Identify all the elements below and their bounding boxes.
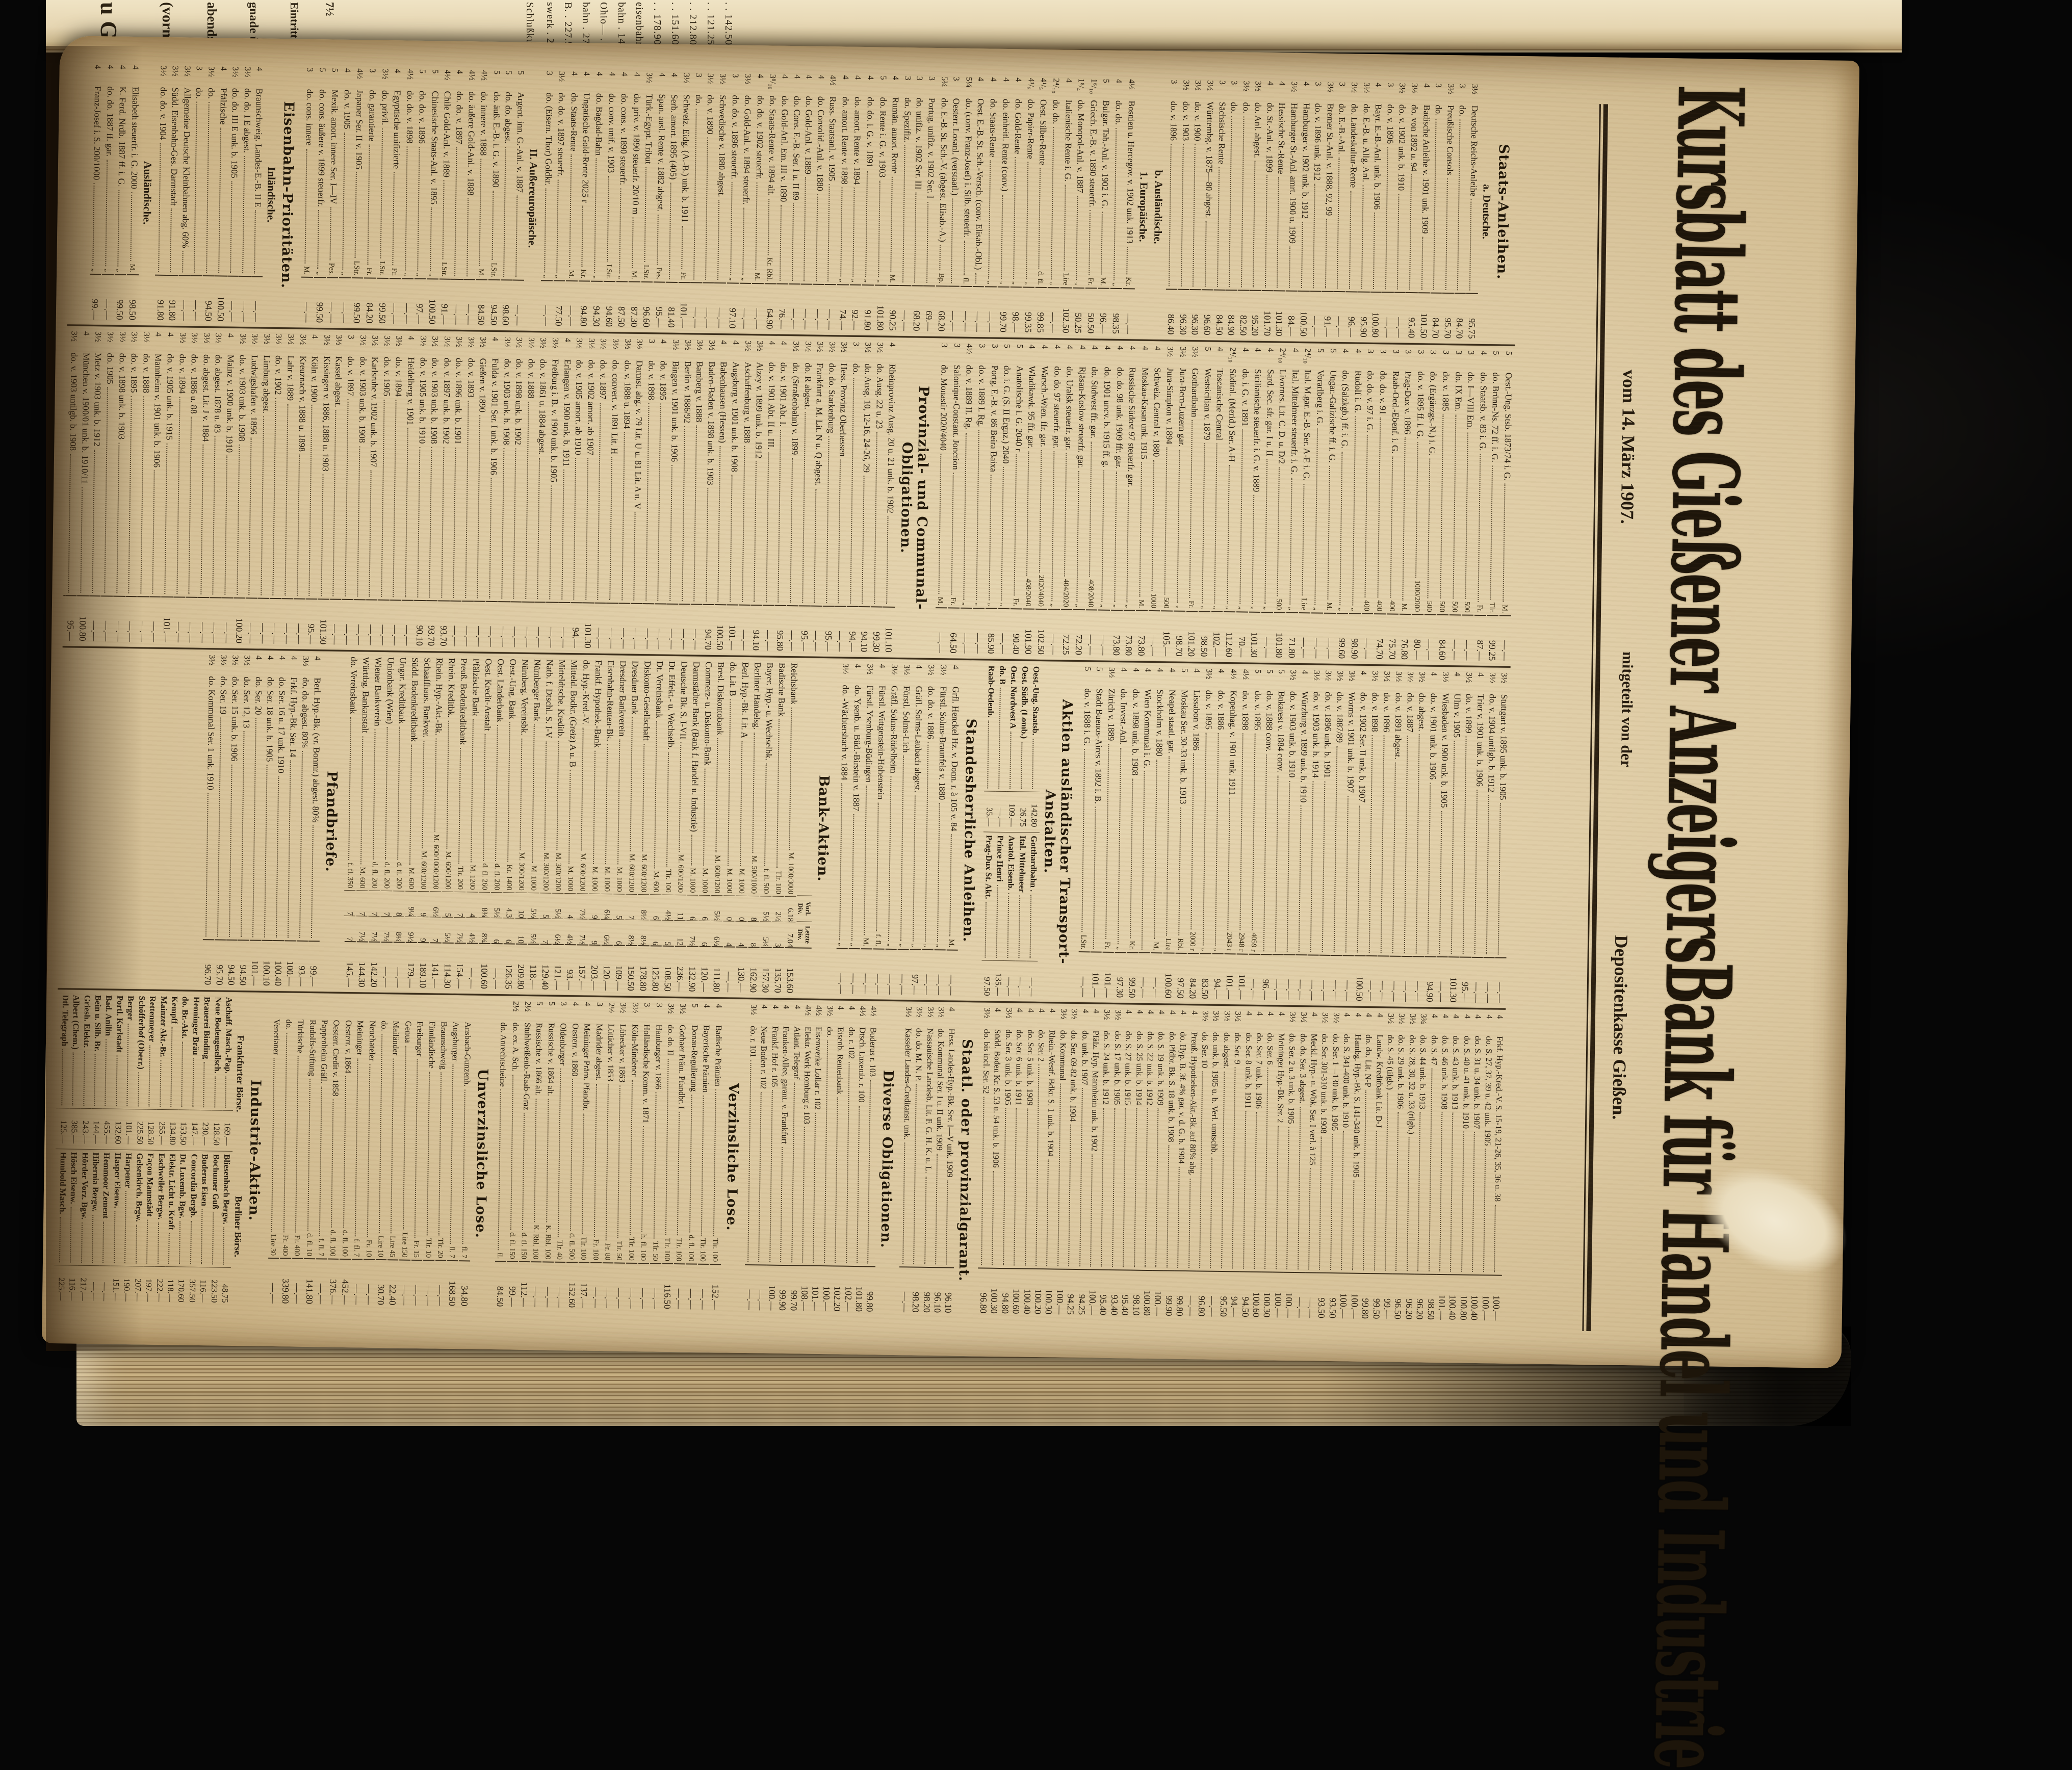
quote-name-text: do. v. 1888 bbox=[525, 359, 537, 399]
quote-price: —.— bbox=[326, 277, 338, 323]
dot-leader bbox=[1139, 462, 1142, 597]
quote-price: 80.— bbox=[1411, 614, 1423, 660]
quote-name-text: do. Ser. 9 bbox=[1232, 1032, 1243, 1064]
pair-right-name: Bochumer Guß bbox=[210, 1154, 222, 1210]
quote-denom: d. fl. 150 bbox=[506, 1232, 517, 1259]
quote-rate: 4 bbox=[846, 1006, 858, 1027]
quote-name-text: do. S. 47 bbox=[1429, 1035, 1440, 1065]
quote-denom: d. fl. bbox=[1034, 271, 1046, 285]
quote-rate: 3½ bbox=[742, 74, 754, 95]
quote-price: 94.70 bbox=[702, 604, 714, 650]
quote-name: do. conv. unif. v. 1903 bbox=[604, 93, 617, 265]
quote-rate: 3½ bbox=[643, 72, 655, 94]
dot-leader bbox=[891, 176, 893, 272]
quote-price: 100.40 bbox=[273, 940, 284, 986]
bank-letzte-div: 8¼ bbox=[393, 916, 404, 942]
quote-rate: 4 bbox=[568, 71, 580, 93]
quote-price: 94.— bbox=[846, 606, 859, 652]
quote-rate: 3½ bbox=[1164, 346, 1176, 368]
quote-name-text: do. Ser. 18 unk. b. 1905 bbox=[264, 677, 276, 762]
quote-rate: 3½ bbox=[618, 1002, 629, 1024]
quote-price: —.— bbox=[872, 948, 884, 994]
quote-rate: 3½ bbox=[1203, 668, 1215, 690]
dot-leader bbox=[1014, 1108, 1017, 1266]
quote-name-text: do. v. 1905 bbox=[341, 90, 353, 129]
quote-rate: 4 bbox=[1264, 348, 1276, 369]
quote-rate: 4 bbox=[1091, 1009, 1102, 1030]
quote-name-text: do. i. G. (S. II Ergnz.) 2040 bbox=[1000, 366, 1013, 464]
quote-rate bbox=[346, 999, 346, 1020]
quote-rate: 3½ bbox=[157, 66, 169, 87]
facing-quote-fragment: . . 212.80 bbox=[687, 2, 698, 45]
quote-denom: 404/2020 bbox=[1060, 579, 1072, 607]
dot-leader bbox=[182, 251, 184, 273]
quote-price: 96.30 bbox=[1189, 289, 1201, 335]
quote-price: —.— bbox=[315, 1258, 327, 1304]
quote-price: 71.80 bbox=[1286, 612, 1298, 658]
quote-name-text: do. v. 1897 bbox=[345, 356, 357, 396]
dot-leader bbox=[1451, 741, 1455, 954]
pair-left: Dtl. Telegraph125.— bbox=[58, 995, 71, 1143]
bank-vorl-div: 6 bbox=[650, 894, 661, 920]
bank-vorl-div: 6 bbox=[698, 895, 710, 921]
quote-price: —.— bbox=[960, 286, 972, 332]
quote-rate: 3½ bbox=[1311, 670, 1323, 691]
quote-denom: „ bbox=[1248, 606, 1260, 610]
bank-price: —.— bbox=[393, 942, 405, 987]
dot-leader bbox=[876, 802, 879, 931]
dot-leader bbox=[730, 182, 733, 274]
dot-leader bbox=[515, 196, 517, 277]
quote-price: 95.— bbox=[65, 595, 77, 641]
quote-name-text: do. v. 1889 I. Rg. bbox=[976, 365, 988, 427]
quote-price: 99.70 bbox=[997, 287, 1009, 332]
quote-rate: 3 bbox=[1457, 84, 1468, 105]
quote-price: 94.10 bbox=[750, 605, 762, 650]
quote-denom: Bp. bbox=[935, 273, 947, 283]
quote-name-text: do. bbox=[824, 1027, 836, 1037]
bank-letzte-div: 9 bbox=[588, 919, 600, 945]
quote-rate: 3½ bbox=[300, 656, 312, 678]
quote-price: 100.80 bbox=[1369, 292, 1382, 337]
quote-name-text: Wiesbaden v. 1900 unk. b. 1905 bbox=[1439, 693, 1452, 808]
dot-leader bbox=[939, 245, 941, 271]
quote-rate: 3½ bbox=[63, 331, 68, 352]
quote-name-text: Argent. inn. G.-Anl. v. 1887 bbox=[514, 92, 527, 193]
quote-name-text: Augsburg v. 1901 unk. b. 1908 bbox=[729, 361, 742, 472]
dot-leader bbox=[1101, 1108, 1104, 1267]
quote-denom: „ bbox=[1223, 606, 1234, 610]
bank-letzte-div: 5½ bbox=[527, 918, 539, 944]
bank-letzte-div: 5 bbox=[662, 920, 674, 946]
bank-name-text: Württbg. Bankanstalt bbox=[360, 657, 372, 733]
quote-denom: Fr. bbox=[1084, 277, 1096, 285]
quote-rate: 4 bbox=[1429, 1014, 1440, 1035]
quote-rate: 3½ bbox=[1396, 1013, 1407, 1035]
quote-price: —.— bbox=[565, 280, 578, 326]
dot-leader bbox=[1254, 1112, 1257, 1269]
dot-leader bbox=[824, 1040, 828, 1263]
quote-name-text: Anatolische i. G. 2040 r bbox=[1013, 366, 1026, 451]
quote-rate: 3½ bbox=[453, 336, 465, 358]
masthead-rule bbox=[1582, 104, 1608, 1331]
pair-right-name: Humbold Masch. bbox=[57, 1152, 69, 1214]
quote-rate: 4 bbox=[1151, 346, 1163, 368]
pair-right: Humbold Masch.225.— bbox=[56, 1149, 69, 1301]
quote-denom: M. bbox=[1150, 942, 1161, 950]
dot-leader bbox=[1349, 191, 1352, 289]
quote-name-text: Fürstl. Ysenburg-Büdingen bbox=[863, 685, 876, 783]
bank-denom: Kr. 1400 bbox=[503, 865, 515, 891]
quote-price: 100.60 bbox=[1162, 952, 1174, 998]
quote-price: —.— bbox=[594, 603, 606, 648]
quote-denom: M. bbox=[946, 939, 957, 948]
bank-name-text: Rhein. Hyp.-Akt.-Bk. bbox=[433, 658, 445, 735]
dot-leader bbox=[392, 172, 395, 265]
quote-rate: 3½ bbox=[1101, 1009, 1112, 1031]
quote-name: do. E.-B. St. Sch.-V. (abgest. Elisab.-A… bbox=[936, 98, 950, 273]
quote-rate bbox=[406, 1000, 406, 1021]
dot-leader bbox=[679, 742, 681, 852]
dot-leader bbox=[776, 719, 780, 868]
pair-right: Ital. Mittelmeer—.— bbox=[1015, 832, 1028, 997]
dot-leader bbox=[453, 447, 456, 597]
quote-name-text: do. do. 97 steuerfr. gar. bbox=[1050, 366, 1063, 449]
quote-name-text: Mannheim v. 1901 unk. b. 1906 bbox=[151, 354, 165, 468]
quote-name-text: do. bbox=[379, 1021, 390, 1031]
quote-denom: K. Rbl. 100 bbox=[542, 1225, 553, 1260]
quote-name-text: Westsicilian v. 1879 bbox=[1201, 368, 1214, 440]
quote-rate: 3½ bbox=[1287, 670, 1299, 691]
dot-leader bbox=[1014, 454, 1017, 595]
quote-rate: 4 bbox=[1264, 81, 1276, 102]
quote-price: 101.— bbox=[1436, 1274, 1447, 1320]
quote-rate: 3½ bbox=[357, 335, 369, 356]
quote-price: 84.50 bbox=[475, 279, 487, 325]
quote-price: —.— bbox=[554, 1262, 566, 1308]
quote-name-text: do. Ser. 2 u. 3 unk. b. 1905 bbox=[1286, 1033, 1298, 1124]
bank-denom: M. 300/1200 bbox=[515, 852, 527, 891]
quote-price: —.— bbox=[1207, 1271, 1219, 1317]
pair-right-name: Bliesenbach Bergw. bbox=[221, 1154, 232, 1225]
facing-quote-fragment: . . 142.50 bbox=[722, 2, 734, 45]
quote-denom: „ bbox=[972, 603, 984, 606]
quote-name: Italienische Rente i. G. bbox=[1060, 99, 1074, 273]
bank-letzte-div: 7½ bbox=[454, 917, 465, 943]
dot-leader bbox=[426, 1072, 429, 1236]
section-subheading: a. Deutsche. bbox=[1479, 84, 1495, 339]
dot-leader bbox=[1289, 247, 1290, 288]
bank-price: 126.35 bbox=[503, 943, 515, 989]
quote-name-text: Moskau Ser. 30-33 unk. b. 1913 bbox=[1178, 690, 1190, 804]
dot-leader bbox=[379, 1034, 382, 1233]
quote-price: 100.— bbox=[1338, 1272, 1350, 1318]
dot-leader bbox=[1308, 1168, 1311, 1270]
quote-price: —.— bbox=[1361, 613, 1374, 659]
quote-name-text: do. do. v. 91 bbox=[1377, 371, 1389, 415]
bank-letzte-div: 6 bbox=[650, 920, 661, 945]
quote-rate: 3½ bbox=[393, 335, 405, 357]
dot-leader bbox=[701, 1096, 704, 1236]
quote-price: 94.50 bbox=[488, 279, 500, 325]
quote-name-text: Württembg. v. 1875—80 abgest. bbox=[1203, 101, 1216, 218]
quote-rate: 4 bbox=[1452, 672, 1463, 693]
quote-rate: 3½ bbox=[68, 331, 80, 352]
quote-denom: „ bbox=[1285, 607, 1297, 610]
quote-rate: 4 bbox=[839, 75, 851, 96]
dot-leader bbox=[935, 1154, 938, 1264]
quote-price: —.— bbox=[351, 1259, 363, 1305]
quote-price: —.— bbox=[221, 597, 233, 643]
dot-leader bbox=[1428, 783, 1431, 953]
quote-name-text: do. v. 1901 unk. b. 1906 bbox=[1427, 693, 1439, 780]
quote-price: —.— bbox=[824, 284, 836, 330]
quote-rate: 3½ bbox=[790, 341, 801, 362]
quote-rate: 3½ bbox=[1200, 1010, 1211, 1032]
dot-leader bbox=[1340, 452, 1343, 605]
quote-price: 101.— bbox=[161, 596, 173, 642]
transmitted-by: mitgeteilt von der bbox=[1613, 652, 1636, 767]
bank-price: 157.— bbox=[577, 944, 588, 990]
quote-denom: „ bbox=[1009, 281, 1021, 285]
dot-leader bbox=[537, 458, 540, 599]
dot-leader bbox=[304, 149, 307, 264]
quote-rate bbox=[465, 1000, 466, 1022]
quote-rate: 5 bbox=[1276, 669, 1287, 691]
quote-rate: 4 bbox=[890, 76, 901, 97]
quote-price: —.— bbox=[590, 1262, 602, 1308]
quote-name-text: do. do. abgest. 80% bbox=[299, 678, 312, 748]
quote-denom: 2043 r bbox=[1224, 932, 1235, 952]
quote-name-text: do. do. 98 unk. 1909 ffr. gar. bbox=[1113, 367, 1126, 469]
pair-left: Henninger Bräu147.— bbox=[189, 997, 202, 1146]
quote-name-text: Bukarest v. 1884 conv. bbox=[1275, 691, 1287, 772]
quote-name-text: do. v. 1888 conv. bbox=[1263, 691, 1276, 752]
dot-leader bbox=[992, 1171, 994, 1265]
quote-name-text: Gräfl. Solms-Laubach abgest. bbox=[912, 686, 925, 792]
dot-leader bbox=[1221, 1072, 1225, 1268]
pair-left: Schöfferhof (Oberr.)225.50 bbox=[135, 996, 147, 1144]
quote-rate: 4 bbox=[865, 75, 876, 97]
quote-rate: 3 bbox=[1402, 350, 1414, 371]
bank-denom: M. 600/1200 bbox=[675, 854, 686, 893]
dot-leader bbox=[241, 731, 245, 937]
dot-leader bbox=[1051, 127, 1054, 279]
quote-rate: 4 bbox=[947, 1007, 958, 1028]
quote-name-text: Finnländische bbox=[426, 1021, 438, 1069]
quote-name-text: Oldenburger bbox=[557, 1023, 569, 1065]
quote-name-text: do. Brünn-Ns. 72 ff. i. G. bbox=[1489, 372, 1502, 462]
quote-denom: h. fl. 100 bbox=[637, 1234, 649, 1261]
dot-leader bbox=[1199, 1071, 1203, 1268]
dot-leader bbox=[632, 218, 633, 269]
quote-name-text: do. v. 1905 unk. b. 1915 bbox=[164, 354, 176, 440]
quote-rate: 4 bbox=[1036, 1008, 1047, 1030]
dot-leader bbox=[865, 171, 868, 277]
pair-left-price: 109.— bbox=[1006, 791, 1018, 827]
dot-leader bbox=[802, 1127, 805, 1263]
quote-denom: M. bbox=[1097, 277, 1109, 286]
dot-leader bbox=[1483, 1149, 1486, 1272]
quote-price: —.— bbox=[485, 601, 498, 647]
quote-denom: fl. 7 bbox=[458, 1246, 470, 1259]
quote-rate: 3½ bbox=[1211, 1011, 1222, 1032]
bank-vorl-div: 5½ bbox=[527, 893, 539, 918]
dot-leader bbox=[1154, 760, 1157, 940]
quote-name-text: do. v. 1903 unk. b. 1914 bbox=[1310, 691, 1322, 778]
pair-right: Anatol. Eisenb.—.— bbox=[1003, 832, 1017, 997]
quote-rate: 3½ bbox=[1222, 1011, 1233, 1032]
pair-right: Bochumer Guß223.50 bbox=[209, 1151, 222, 1303]
pair-left-name: Kempff bbox=[169, 996, 180, 1024]
dot-leader bbox=[1298, 1107, 1301, 1269]
dot-leader bbox=[343, 1076, 346, 1227]
dot-leader bbox=[422, 741, 424, 848]
pair-left: Rettenmeyer128.50 bbox=[145, 996, 158, 1145]
dot-leader bbox=[417, 447, 420, 597]
section-heading: Eisenbahn-Prioritäten. bbox=[278, 67, 297, 322]
quote-rate: 4 bbox=[80, 331, 92, 353]
pair-right-price: 222.— bbox=[154, 1266, 165, 1302]
quote-price: 101.70 bbox=[1261, 290, 1274, 336]
bank-name-text: Reichsbank bbox=[788, 663, 800, 705]
bank-price: 93.— bbox=[564, 944, 576, 990]
quote-price: —.— bbox=[461, 601, 474, 646]
quote-rate: 4½ bbox=[827, 75, 839, 96]
quote-name-text: Franken-Allee, garant. v. Frankfurt bbox=[779, 1026, 792, 1144]
quote-rate: 3½ bbox=[630, 1003, 641, 1024]
quote-name-text: Ital. M.gar. E.-B. Ser. A-E i. G. bbox=[1301, 370, 1314, 481]
quote-price: 101.90 bbox=[1023, 608, 1035, 654]
bank-name-text: Berliner Handelsg. bbox=[752, 662, 764, 730]
dot-leader bbox=[1152, 460, 1155, 591]
quote-rate: 3½ bbox=[513, 337, 525, 358]
quote-price: 101.80 bbox=[1273, 612, 1285, 658]
pair-left: Aschaff. Masch.-Pap.169.— bbox=[222, 997, 235, 1146]
pair-left-name: Henninger Bräu bbox=[190, 997, 202, 1055]
bank-letzte-div: 4 bbox=[723, 921, 735, 946]
dot-leader bbox=[373, 730, 376, 860]
dot-leader bbox=[886, 516, 888, 604]
dot-leader bbox=[645, 403, 649, 601]
dot-leader bbox=[299, 751, 303, 938]
quote-rate: 4 bbox=[1309, 1012, 1320, 1033]
dot-leader bbox=[1472, 1132, 1475, 1272]
quote-rate: 4 bbox=[1080, 1009, 1091, 1030]
quote-name-text: Span. ausl. Rente v. 1882 abgest. bbox=[655, 94, 668, 212]
dot-leader bbox=[311, 825, 314, 938]
quote-rate: 4½ bbox=[478, 70, 490, 91]
dot-leader bbox=[1189, 420, 1193, 598]
quote-price: 87.50 bbox=[615, 281, 628, 327]
quote-price: 74.70 bbox=[1374, 613, 1386, 659]
dot-leader bbox=[264, 765, 268, 938]
quote-rate: 4 bbox=[1451, 1014, 1462, 1035]
quote-rate bbox=[501, 1001, 502, 1022]
quote-price: 99.50 bbox=[1126, 952, 1138, 998]
quote-rate: 4 bbox=[713, 1004, 724, 1025]
quote-name-text: do. do. v. 97 i. G. bbox=[1364, 371, 1377, 433]
quote-denom: „ bbox=[997, 281, 1008, 284]
quote-rate: 3½ bbox=[862, 342, 874, 363]
quote-name-text: Grfl. Henckel Hz. v. Donn. r. à 105 v. 8… bbox=[948, 686, 962, 831]
dot-leader bbox=[1026, 452, 1029, 576]
quote-price: —.— bbox=[558, 602, 570, 648]
quote-denom: Fr. bbox=[363, 268, 375, 276]
quote-rate: 3½ bbox=[681, 73, 692, 94]
quote-name-text: do. S. 45 (tilgb.) bbox=[1384, 1034, 1396, 1089]
dot-leader bbox=[838, 460, 841, 604]
quote-name-text: Ulm v. 1905 bbox=[1452, 693, 1463, 738]
quote-name-text: Augsburger bbox=[450, 1022, 461, 1061]
dot-leader bbox=[1241, 116, 1245, 287]
quote-price: 100.40 bbox=[1447, 1274, 1459, 1320]
quote-rate: 3½ bbox=[901, 664, 913, 686]
quote-name-text: do. conv. unif. v. 1903 bbox=[605, 93, 618, 173]
quote-price: 376.— bbox=[327, 1259, 339, 1305]
bank-name-text: Oest.-Ung. Bank bbox=[507, 659, 519, 719]
quote-price: 100.40 bbox=[1468, 1274, 1480, 1320]
quote-price: 82.50 bbox=[1237, 290, 1250, 335]
quote-rate: 3½ bbox=[1331, 1012, 1342, 1034]
quote-denom: „ bbox=[101, 269, 113, 272]
dot-leader bbox=[237, 444, 240, 594]
quote-name-text: do. Ser. 10 bbox=[1199, 1032, 1210, 1068]
quote-name-text: Madrider abgest. bbox=[593, 1024, 605, 1081]
quote-price: —.— bbox=[125, 596, 137, 642]
dot-leader bbox=[1433, 119, 1437, 290]
quote-price: —.— bbox=[744, 1264, 756, 1310]
dot-leader bbox=[380, 128, 383, 258]
quote-name-text: K. Ferd. Nrdb. 1887 ff. i. G. bbox=[116, 87, 128, 187]
pair-left-name: do. Br.-Akt. bbox=[179, 996, 191, 1038]
quote-rate: 4 bbox=[1358, 671, 1369, 692]
pair-right: Gelsenkirch. Brgw.207.— bbox=[132, 1150, 145, 1302]
quote-name: Türk.-Egypt. Tribut bbox=[641, 94, 655, 265]
pair-right-price: —.— bbox=[1003, 960, 1015, 996]
quote-rate: 3½ bbox=[598, 339, 609, 360]
pair-left-price: 142.80 bbox=[1028, 791, 1040, 827]
quote-price: —.— bbox=[329, 598, 342, 644]
dot-leader bbox=[1341, 1131, 1344, 1270]
quote-price: 95.— bbox=[822, 606, 835, 652]
quote-name-text: Sard. Sec. sfr. gar. I u. II bbox=[1263, 369, 1276, 456]
quote-rate: 5 bbox=[417, 69, 428, 91]
quote-rate: 4 bbox=[1156, 1010, 1168, 1031]
quote-price: 95.— bbox=[1459, 956, 1471, 1002]
dot-leader bbox=[1440, 414, 1443, 599]
quote-denom: Kr. bbox=[1122, 277, 1134, 286]
quote-denom: Kr. bbox=[578, 269, 589, 278]
quote-name-text: Gotthardbahn bbox=[1189, 368, 1201, 418]
pair-right-name: Hibernia Bergw. bbox=[90, 1153, 101, 1212]
quote-name: Oest. Silber-Rente bbox=[1035, 99, 1049, 271]
quote-name-text: Pfälz. Hyp. Mannheim unk. b. 1902 bbox=[1089, 1030, 1102, 1151]
dot-leader bbox=[1193, 144, 1196, 287]
quote-rate: 4 bbox=[1239, 347, 1251, 369]
quote-name-text: Rumän. amort. Rente bbox=[889, 97, 902, 174]
dot-leader bbox=[1093, 807, 1096, 949]
pair-left-name: Albert (Chem.) bbox=[70, 995, 82, 1050]
quote-rate: 3½ bbox=[633, 339, 645, 360]
dot-leader bbox=[477, 415, 481, 598]
quote-name-text: Köln v. 1900 bbox=[308, 356, 321, 402]
quote-name-text: do. St.-Anl. v. 1899 bbox=[1263, 102, 1276, 173]
quote-price: —.— bbox=[836, 948, 847, 994]
pair-right: Harpener190.— bbox=[121, 1149, 135, 1302]
facing-quote-fragment: bahn . 27.10 bbox=[580, 2, 591, 49]
dot-leader bbox=[1421, 237, 1423, 290]
